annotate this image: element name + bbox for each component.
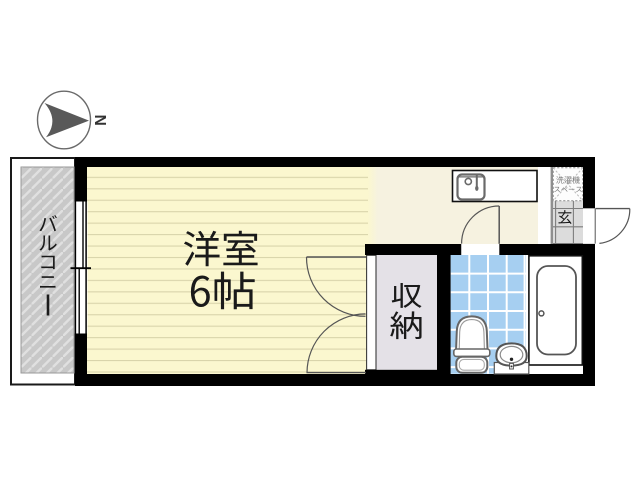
svg-text:N: N [91,115,108,126]
